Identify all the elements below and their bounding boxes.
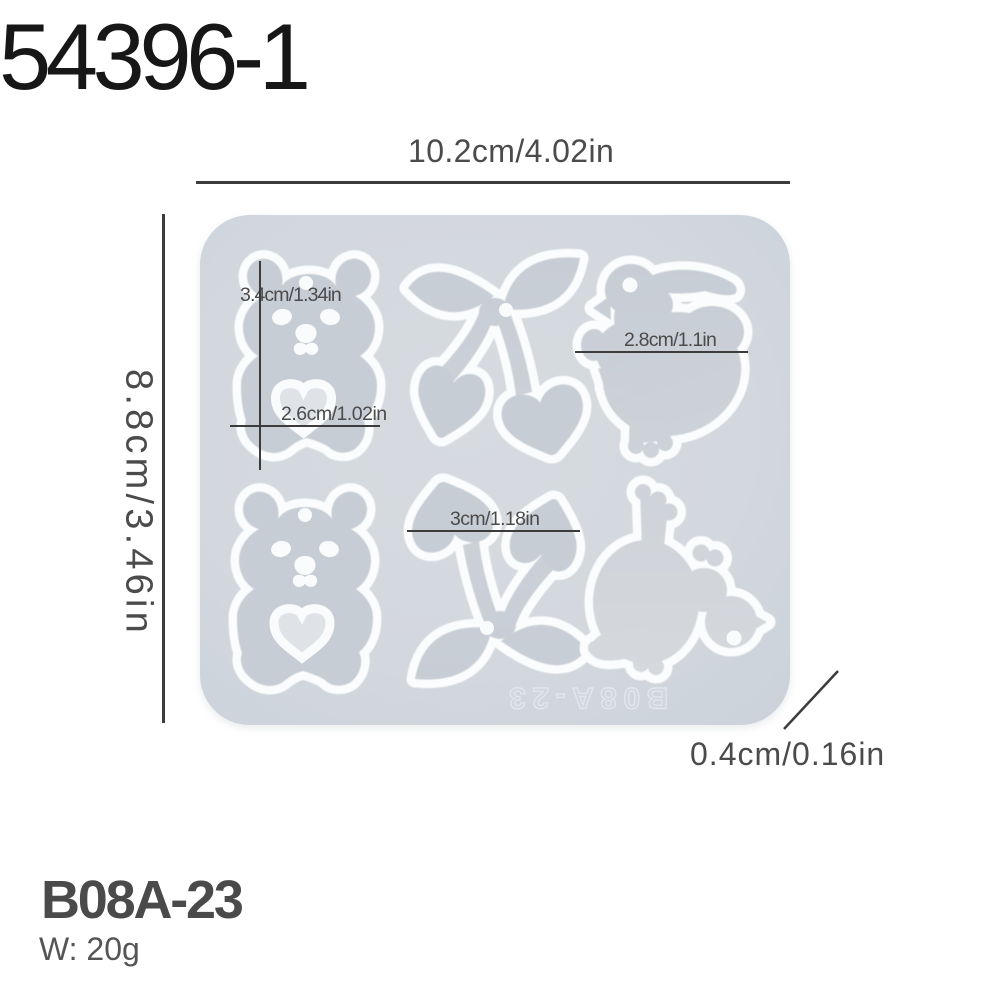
svg-text:B08A-23: B08A-23: [503, 681, 669, 714]
